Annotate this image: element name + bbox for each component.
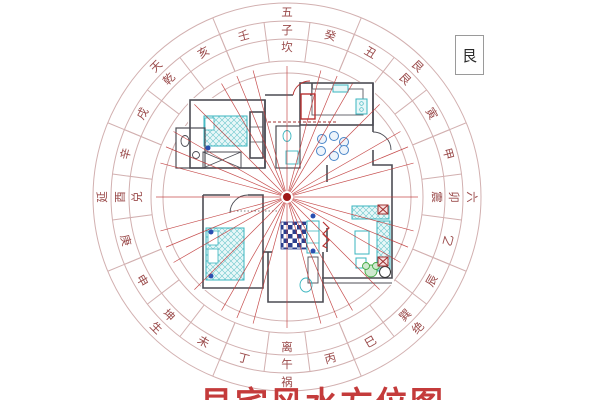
mountain-ring-char: 庚 [117,233,134,248]
blue-dot-icon [311,214,316,219]
star-ring-char: 延 [95,191,109,203]
kitchen-sink-icon [333,85,348,92]
fengshui-diagram: 五艮六绝祸生延天壬子癸丑艮寅甲卯乙辰巽巳丙午丁未坤申庚酉辛戌乾亥坎震离兑 [0,0,600,400]
room-backing [266,250,325,307]
mountain-ring-char: 辛 [117,146,133,161]
mountain-ring-char: 午 [281,357,293,371]
trigram-sector-divider [213,323,235,377]
trigram-sector-divider [108,249,162,271]
star-ring-char: 五 [281,5,293,19]
mountain-ring-char: 子 [281,23,293,37]
mountain-ring-char: 巳 [362,333,379,351]
mountain-ring-char: 乙 [440,233,456,248]
legend-label: 艮 [462,45,477,66]
sector-divider [370,305,394,337]
sector-divider [422,174,462,179]
mountain-ring-char: 丁 [236,350,251,366]
sector-divider [180,305,204,337]
clipped-bottom-title: 艮宅风水方位图 [200,387,445,400]
mountain-ring-char: 酉 [113,191,127,203]
coffee-table [355,231,369,254]
balcony-door-arc [373,132,391,150]
mountain-ring-char: 壬 [236,27,251,43]
mountain-ring-char: 癸 [323,27,338,44]
trigram-sector-divider [339,18,361,72]
radiating-lines [156,66,418,328]
trigram-sector-divider [108,123,162,145]
sector-divider [147,280,179,304]
trigram-sector-divider [213,18,235,72]
trigram-ring-char: 坎 [281,40,293,54]
trigram-ring-char: 震 [430,191,444,203]
mountain-ring-char: 丙 [323,350,338,366]
sector-divider [264,332,269,372]
daybed [307,221,319,253]
sector-divider [264,23,269,63]
dining-chair-icon [317,147,326,156]
blue-dot-icon [209,274,214,279]
trigram-ring-char: 离 [281,340,293,354]
sector-divider [113,215,153,220]
mountain-ring-char: 申 [133,272,151,289]
mountain-ring-char: 亥 [195,43,212,61]
mountain-ring-char: 甲 [440,146,456,161]
center-point [283,193,291,201]
blue-dot-icon [209,230,214,235]
sector-divider [113,174,153,179]
sector-divider [395,280,427,304]
diagram-canvas: 五艮六绝祸生延天壬子癸丑艮寅甲卯乙辰巽巳丙午丁未坤申庚酉辛戌乾亥坎震离兑 [0,0,600,400]
trigram-sector-divider [339,323,361,377]
sector-divider [305,23,310,63]
house-trigram-legend: 艮 [455,35,484,75]
stove-icon [356,99,367,114]
dining-chair-icon [340,146,349,155]
trigram-sector-divider [413,249,467,271]
mountain-ring-char: 寅 [423,105,441,122]
sector-divider [147,90,179,114]
bed2-pillow [208,249,218,263]
sector-divider [305,332,310,372]
kitchen-counter [312,89,363,115]
stool-icon [380,267,391,278]
trigram-sector-divider [413,123,467,145]
sector-divider [180,57,204,89]
blue-dot-icon [311,249,316,254]
mountain-ring-char: 丑 [362,43,379,61]
mountain-ring-char: 卯 [447,191,461,203]
dining-chair-icon [330,132,339,141]
sector-divider [422,215,462,220]
blue-dot-icon [206,146,211,151]
star-ring-char: 六 [465,191,479,203]
sector-divider [395,90,427,114]
trigram-ring-char: 兑 [130,191,144,203]
